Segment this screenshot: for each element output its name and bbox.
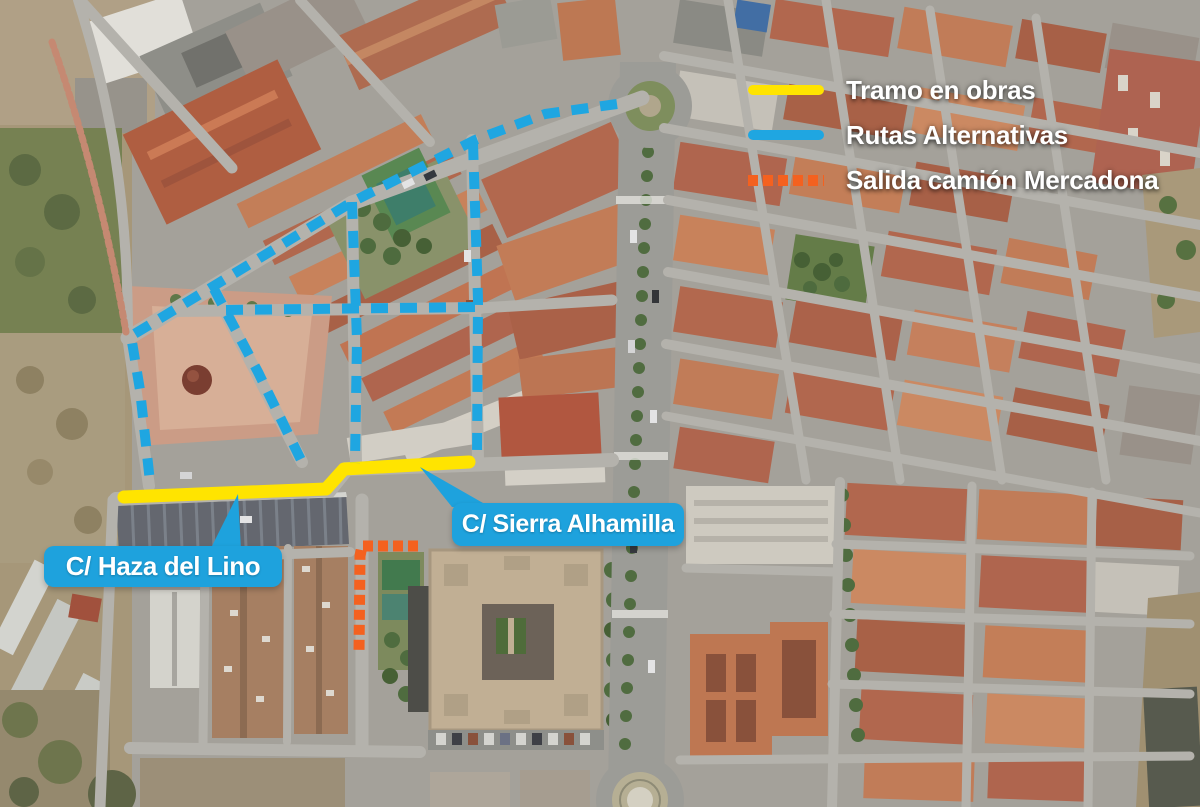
salida-camion-mercadona-line-swatch — [748, 175, 824, 186]
callout-tail-sierra-alhamilla — [420, 467, 490, 507]
callout-sierra-alhamilla-label: C/ Sierra Alhamilla — [462, 510, 674, 539]
callout-tail-haza-del-lino — [210, 494, 241, 550]
legend-label-rutas-alternativas: Rutas Alternativas — [846, 120, 1068, 151]
map-legend: Tramo en obras Rutas Alternativas Salida… — [748, 74, 1158, 209]
legend-item-rutas-alternativas: Rutas Alternativas — [748, 119, 1158, 151]
legend-label-salida-camion-mercadona: Salida camión Mercadona — [846, 165, 1158, 196]
route-tramo-en-obras — [124, 462, 469, 497]
callout-haza-del-lino: C/ Haza del Lino — [44, 546, 282, 587]
callout-sierra-alhamilla: C/ Sierra Alhamilla — [452, 503, 684, 546]
callout-haza-del-lino-label: C/ Haza del Lino — [66, 551, 260, 582]
legend-item-tramo-en-obras: Tramo en obras — [748, 74, 1158, 106]
route-ruta-alternativa-calle-oeste — [352, 202, 357, 463]
route-ruta-alternativa-transversal — [226, 307, 477, 310]
traffic-detour-map: Tramo en obras Rutas Alternativas Salida… — [0, 0, 1200, 807]
legend-label-tramo-en-obras: Tramo en obras — [846, 75, 1035, 106]
route-ruta-alternativa-principal — [131, 104, 617, 482]
legend-item-salida-camion-mercadona: Salida camión Mercadona — [748, 164, 1158, 196]
route-ruta-alternativa-calle-este — [473, 143, 478, 458]
rutas-alternativas-line-swatch — [748, 130, 824, 140]
route-salida-camion-mercadona — [359, 546, 418, 653]
tramo-en-obras-line-swatch — [748, 85, 824, 95]
